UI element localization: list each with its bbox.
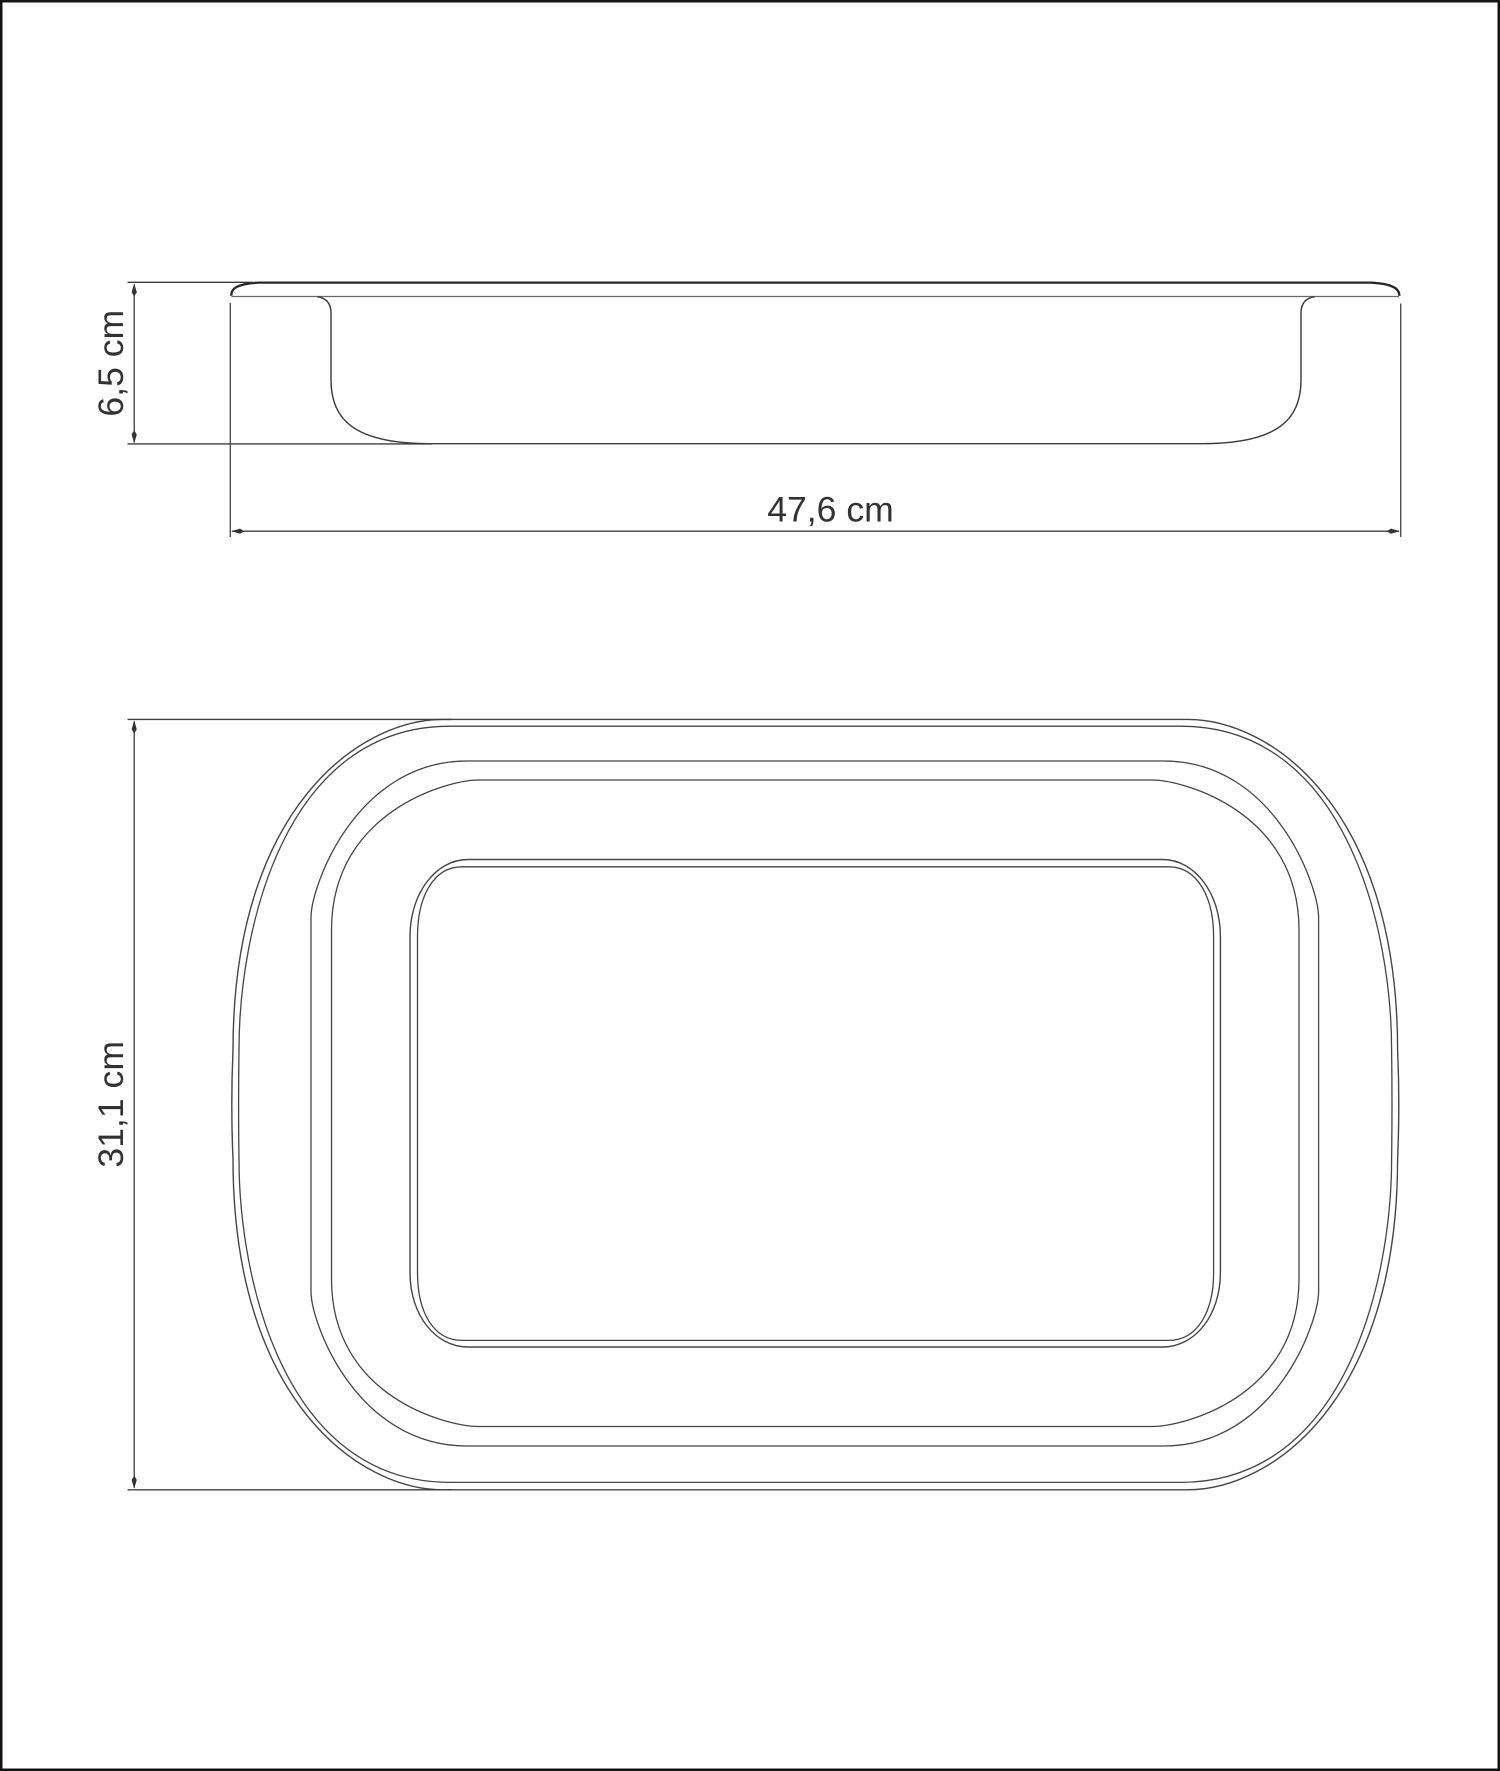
svg-text:47,6 cm: 47,6 cm xyxy=(767,489,894,529)
svg-text:31,1 cm: 31,1 cm xyxy=(91,1041,131,1168)
svg-text:6,5 cm: 6,5 cm xyxy=(91,310,131,417)
